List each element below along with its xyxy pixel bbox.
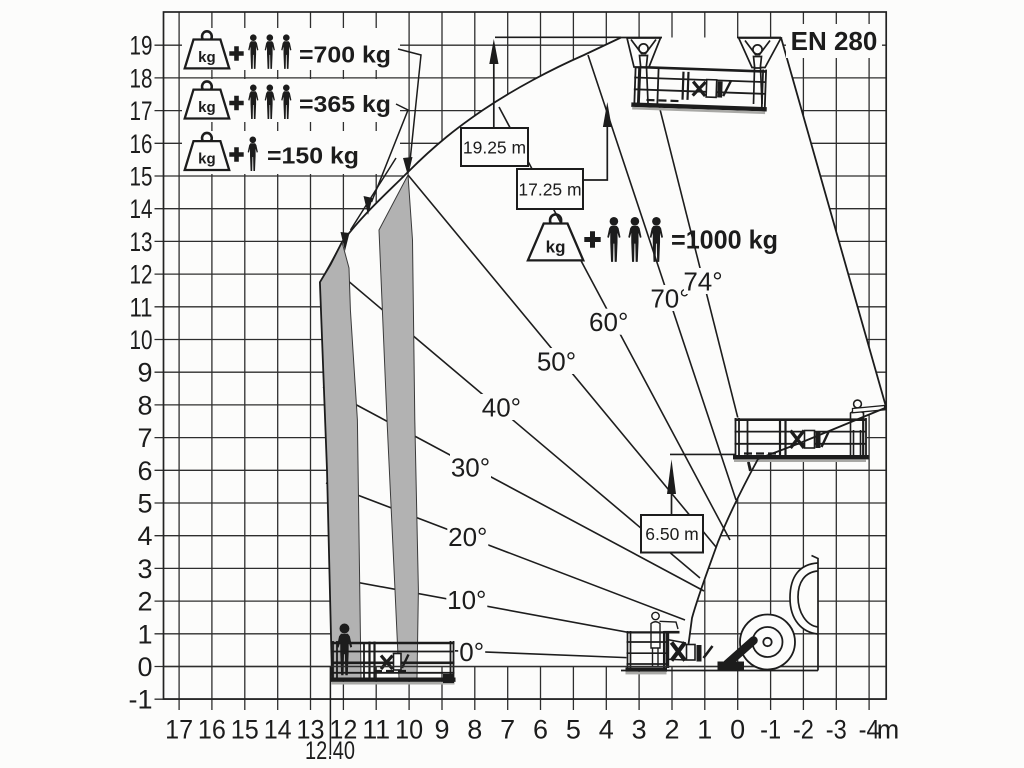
svg-text:12: 12 xyxy=(130,260,153,290)
svg-text:-1: -1 xyxy=(128,685,152,715)
svg-text:=700 kg: =700 kg xyxy=(299,42,391,68)
svg-text:6.50 m: 6.50 m xyxy=(645,524,699,544)
svg-text:19.25 m: 19.25 m xyxy=(463,138,526,158)
svg-text:17: 17 xyxy=(130,96,153,126)
svg-text:2: 2 xyxy=(664,715,679,745)
svg-text:17.25 m: 17.25 m xyxy=(518,180,581,200)
svg-text:50°: 50° xyxy=(537,347,576,377)
svg-text:4: 4 xyxy=(599,715,614,745)
svg-text:=365 kg: =365 kg xyxy=(299,91,391,117)
svg-text:10°: 10° xyxy=(447,585,486,615)
svg-text:10: 10 xyxy=(395,715,423,745)
svg-text:13: 13 xyxy=(130,227,153,257)
svg-text:=150 kg: =150 kg xyxy=(267,143,359,169)
svg-text:12.40: 12.40 xyxy=(305,737,355,765)
svg-text:74°: 74° xyxy=(683,267,722,297)
svg-text:3: 3 xyxy=(632,715,647,745)
svg-text:20°: 20° xyxy=(448,522,487,552)
svg-text:5: 5 xyxy=(137,489,152,519)
svg-text:-3: -3 xyxy=(826,715,847,745)
svg-text:9: 9 xyxy=(137,358,152,388)
svg-text:10: 10 xyxy=(130,325,153,355)
svg-text:-2: -2 xyxy=(793,715,814,745)
svg-text:0: 0 xyxy=(137,652,152,682)
svg-text:kg: kg xyxy=(198,99,216,116)
svg-text:EN 280: EN 280 xyxy=(791,26,878,56)
svg-text:15: 15 xyxy=(231,715,259,745)
svg-text:kg: kg xyxy=(546,237,566,256)
svg-text:60°: 60° xyxy=(589,307,628,337)
svg-text:7: 7 xyxy=(137,423,152,453)
svg-text:16: 16 xyxy=(198,715,226,745)
svg-text:15: 15 xyxy=(130,162,153,192)
svg-text:40°: 40° xyxy=(482,393,521,423)
svg-text:m: m xyxy=(877,715,900,745)
svg-text:14: 14 xyxy=(130,194,153,224)
svg-text:8: 8 xyxy=(467,715,482,745)
svg-text:9: 9 xyxy=(434,715,449,745)
svg-text:0: 0 xyxy=(730,715,745,745)
svg-text:2: 2 xyxy=(137,587,152,617)
svg-text:7: 7 xyxy=(500,715,515,745)
svg-text:8: 8 xyxy=(137,390,152,420)
svg-text:11: 11 xyxy=(130,292,153,322)
svg-text:30°: 30° xyxy=(451,453,490,483)
svg-text:11: 11 xyxy=(362,715,390,745)
svg-text:kg: kg xyxy=(198,49,216,66)
svg-text:-1: -1 xyxy=(760,715,781,745)
svg-text:1: 1 xyxy=(697,715,712,745)
svg-text:3: 3 xyxy=(137,554,152,584)
svg-text:4: 4 xyxy=(137,521,152,551)
svg-text:19: 19 xyxy=(130,31,153,61)
svg-text:0°: 0° xyxy=(459,637,484,667)
svg-text:6: 6 xyxy=(137,456,152,486)
svg-text:18: 18 xyxy=(130,63,153,93)
svg-text:kg: kg xyxy=(198,151,216,168)
svg-text:1: 1 xyxy=(137,619,152,649)
svg-text:5: 5 xyxy=(566,715,581,745)
svg-text:16: 16 xyxy=(130,129,153,159)
svg-text:14: 14 xyxy=(264,715,292,745)
svg-text:6: 6 xyxy=(533,715,548,745)
svg-text:17: 17 xyxy=(165,715,193,745)
svg-text:=1000 kg: =1000 kg xyxy=(671,225,778,255)
